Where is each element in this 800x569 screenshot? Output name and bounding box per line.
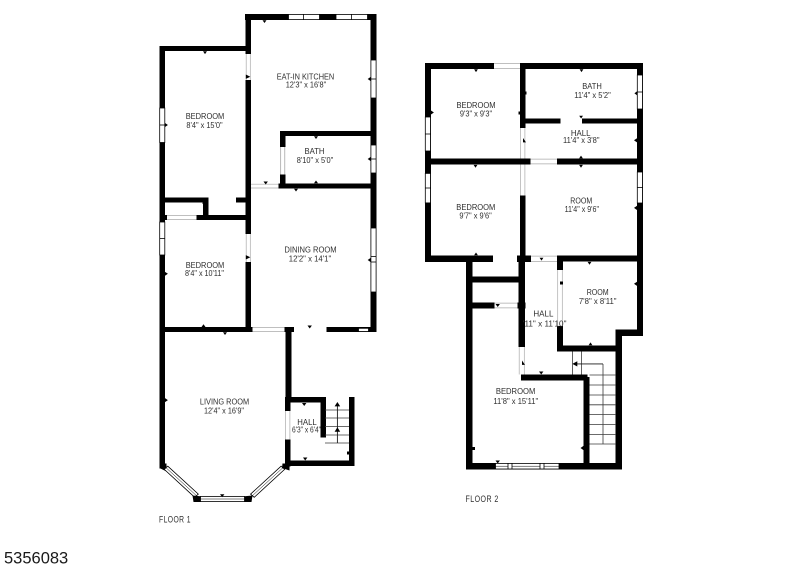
- svg-text:HALL: HALL: [533, 309, 554, 318]
- svg-text:11'4" x 3'8": 11'4" x 3'8": [563, 136, 600, 145]
- svg-text:BATH: BATH: [582, 82, 602, 91]
- svg-text:BEDROOM: BEDROOM: [496, 387, 536, 396]
- svg-text:12'4" x 16'9": 12'4" x 16'9": [204, 406, 244, 415]
- svg-text:12'3" x 16'8": 12'3" x 16'8": [286, 80, 327, 89]
- svg-text:8'4" x 10'11": 8'4" x 10'11": [185, 269, 224, 278]
- svg-text:BATH: BATH: [304, 147, 324, 156]
- svg-text:9'7" x 9'6": 9'7" x 9'6": [459, 212, 492, 221]
- svg-text:LIVING ROOM: LIVING ROOM: [200, 397, 250, 406]
- svg-text:9'3" x 9'3": 9'3" x 9'3": [460, 109, 492, 118]
- svg-text:'11" x 11'10": '11" x 11'10": [523, 319, 567, 328]
- svg-text:11'4" x 5'2": 11'4" x 5'2": [574, 91, 611, 100]
- svg-text:FLOOR 1: FLOOR 1: [159, 514, 191, 525]
- svg-text:FLOOR 2: FLOOR 2: [466, 494, 499, 505]
- svg-text:ROOM: ROOM: [587, 288, 609, 297]
- svg-text:11'4" x 9'6": 11'4" x 9'6": [565, 205, 600, 214]
- svg-text:8'4" x 15'0": 8'4" x 15'0": [186, 121, 222, 130]
- svg-text:12'2" x 14'1": 12'2" x 14'1": [289, 254, 332, 263]
- svg-text:8'10" x 5'0": 8'10" x 5'0": [297, 156, 334, 165]
- svg-text:11'8" x 15'11": 11'8" x 15'11": [493, 397, 538, 406]
- svg-text:DINING ROOM: DINING ROOM: [284, 245, 337, 254]
- svg-text:7'8" x 8'11": 7'8" x 8'11": [579, 297, 617, 306]
- svg-text:5356083: 5356083: [4, 550, 68, 568]
- svg-text:6'3" x 6'4": 6'3" x 6'4": [292, 426, 321, 435]
- svg-text:BEDROOM: BEDROOM: [186, 112, 225, 121]
